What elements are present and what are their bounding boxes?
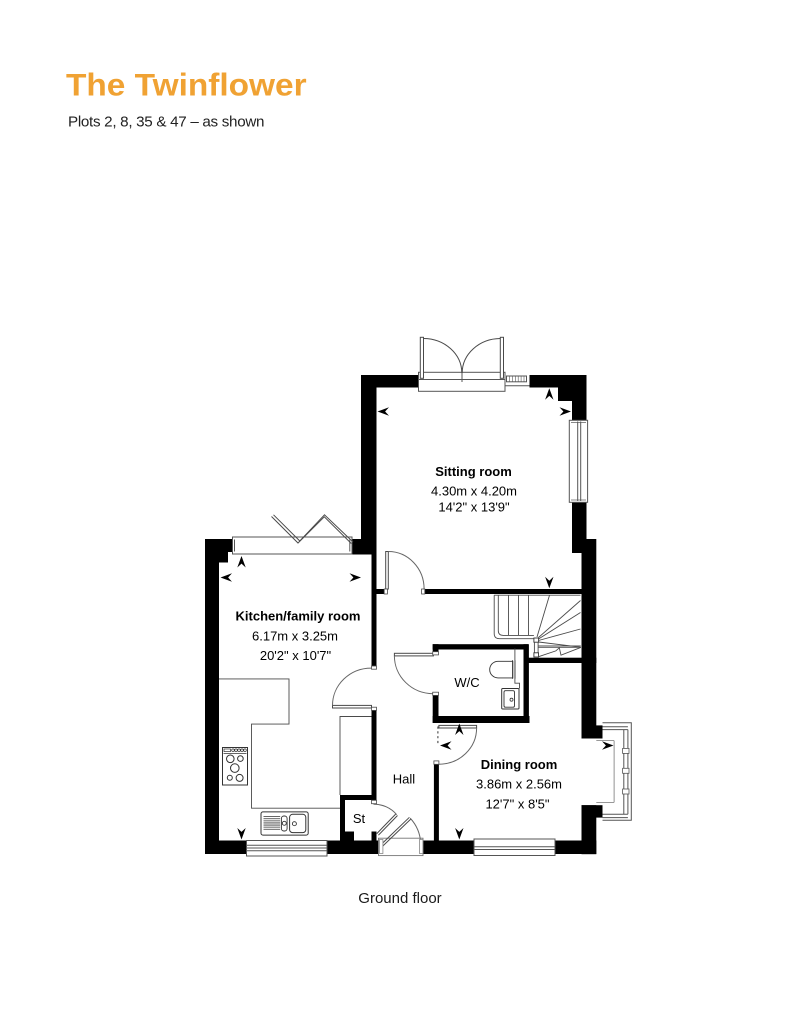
svg-text:20'2" x 10'7": 20'2" x 10'7"	[260, 648, 332, 663]
svg-text:12'7" x 8'5": 12'7" x 8'5"	[485, 797, 549, 812]
svg-text:Hall: Hall	[393, 772, 416, 787]
svg-text:Ground floor: Ground floor	[358, 890, 441, 907]
svg-text:6.17m x 3.25m: 6.17m x 3.25m	[252, 629, 338, 644]
svg-text:4.30m x 4.20m: 4.30m x 4.20m	[431, 484, 517, 499]
svg-text:W/C: W/C	[454, 675, 479, 690]
svg-text:Sitting room: Sitting room	[435, 464, 512, 479]
svg-text:The Twinflower: The Twinflower	[66, 67, 307, 102]
svg-text:Plots 2, 8, 35 & 47 – as shown: Plots 2, 8, 35 & 47 – as shown	[68, 114, 264, 131]
svg-text:Dining room: Dining room	[481, 757, 558, 772]
svg-text:3.86m x 2.56m: 3.86m x 2.56m	[476, 777, 562, 792]
svg-text:St: St	[353, 811, 366, 826]
svg-text:Kitchen/family room: Kitchen/family room	[236, 609, 361, 624]
svg-text:14'2" x 13'9": 14'2" x 13'9"	[438, 500, 510, 515]
